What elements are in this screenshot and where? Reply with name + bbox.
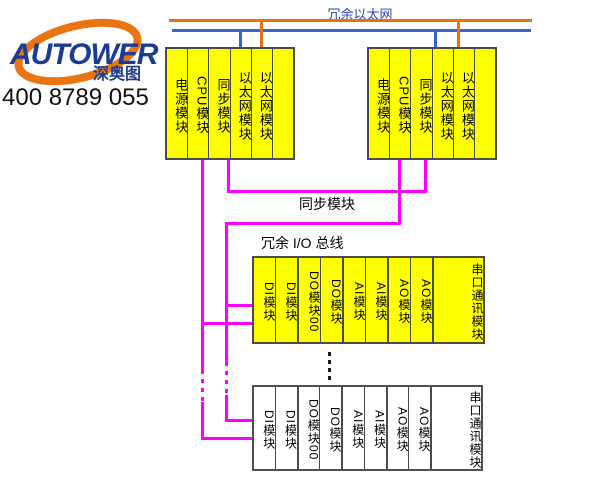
sync-link-horizontal [227,190,427,193]
io-bus-b-horizontal [225,222,401,225]
io-bus-a-bottom-rack-stub [201,437,252,440]
cpu-module: CPU模块 [188,49,209,158]
do-module-2: DO模块 [321,258,344,342]
di-module-2: DI模块 [276,387,299,469]
empty-slot [475,49,495,158]
ao-module-1: AO模块 [389,258,411,342]
ethernet-module-2: 以太网模块 [252,49,273,158]
io-bus-b-rack-b-drop [398,160,401,224]
sync-link-label: 同步模块 [299,194,355,214]
di-module-1: DI模块 [254,258,276,342]
ai-module-2: AI模块 [366,258,389,342]
sync-link-rack-a-drop [227,160,230,192]
empty-slot [273,49,293,158]
diagram-canvas: AUTOWER 深奥图 400 8789 055 冗余以太网 电源模块 CPU模… [0,0,600,480]
logo-cn-text: 深奥图 [93,64,141,83]
power-module: 电源模块 [369,49,390,158]
sync-module: 同步模块 [209,49,230,158]
ethernet-module-2: 以太网模块 [454,49,475,158]
ai-module-1: AI模块 [344,258,366,342]
ethernet-module-1: 以太网模块 [231,49,252,158]
ao-module-2: AO模块 [411,258,434,342]
io-bus-b-middle-rack-stub [225,304,252,307]
serial-comm-module: 串口通讯模块 [432,387,481,469]
rack-a-ethernet-b-drop [239,31,242,47]
controller-rack-a: 电源模块 CPU模块 同步模块 以太网模块 以太网模块 [165,47,295,160]
di-module-2: DI模块 [276,258,299,342]
ai-module-2: AI模块 [365,387,388,469]
ao-module-2: AO模块 [409,387,432,469]
io-bus-a-vertical-lower [201,402,204,440]
sync-module: 同步模块 [411,49,432,158]
ethernet-bus-a-line [169,19,532,22]
io-bus-b-vertical-lower [225,395,228,422]
controller-rack-b: 电源模块 CPU模块 同步模块 以太网模块 以太网模块 [367,47,497,160]
serial-comm-module: 串口通讯模块 [434,258,483,342]
io-rack-n: DI模块 DI模块 DO模块00 DO模块 AI模块 AI模块 AO模块 AO模… [252,385,483,471]
io-bus-b-bottom-rack-stub [225,419,252,422]
rack-b-ethernet-b-drop [434,31,437,47]
rack-a-ethernet-a-drop [260,21,263,47]
phone-number: 400 8789 055 [2,84,162,112]
do-module-1: DO模块00 [299,258,321,342]
ethernet-bus-b-line [172,29,531,32]
power-module: 电源模块 [167,49,188,158]
ethernet-module-1: 以太网模块 [433,49,454,158]
io-bus-label: 冗余 I/O 总线 [261,233,343,253]
rack-b-ethernet-a-drop [457,21,460,47]
autower-logo: AUTOWER 深奥图 [4,10,166,86]
io-bus-b-vertical-dotted [225,362,228,395]
io-bus-a-vertical-dotted [201,370,204,402]
do-module-2: DO模块 [320,387,343,469]
di-module-1: DI模块 [254,387,276,469]
io-bus-b-vertical-upper [225,222,228,362]
io-rack-1: DI模块 DI模块 DO模块00 DO模块 AI模块 AI模块 AO模块 AO模… [252,256,485,344]
cpu-module: CPU模块 [390,49,411,158]
do-module-1: DO模块00 [299,387,321,469]
sync-link-rack-b-drop [424,160,427,192]
io-bus-a-vertical-upper [201,160,204,370]
ai-module-1: AI模块 [343,387,365,469]
ao-module-1: AO模块 [388,387,410,469]
more-racks-ellipsis [328,352,331,380]
